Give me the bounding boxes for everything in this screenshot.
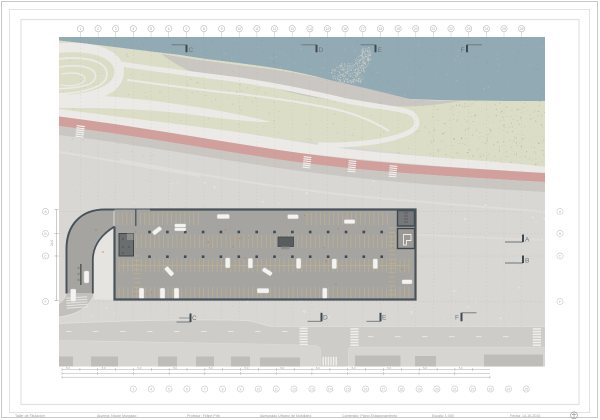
svg-text:Escala: 1:300: Escala: 1:300 — [432, 414, 454, 418]
svg-text:5.0: 5.0 — [66, 366, 70, 370]
svg-text:20: 20 — [435, 387, 439, 391]
svg-text:25: 25 — [502, 27, 506, 31]
svg-text:25: 25 — [524, 387, 528, 391]
svg-text:15: 15 — [326, 27, 330, 31]
svg-text:24: 24 — [507, 387, 511, 391]
svg-text:Profesor: Felipe Prib: Profesor: Felipe Prib — [187, 414, 220, 418]
svg-text:18: 18 — [399, 387, 403, 391]
svg-text:2: 2 — [97, 27, 99, 31]
svg-text:Asesorado Urbano de Mobiliario: Asesorado Urbano de Mobiliario — [260, 414, 311, 418]
svg-text:5.0: 5.0 — [423, 366, 427, 370]
svg-text:5.0: 5.0 — [387, 366, 391, 370]
svg-text:15: 15 — [346, 387, 350, 391]
svg-text:9: 9 — [240, 387, 242, 391]
svg-text:17: 17 — [361, 27, 365, 31]
svg-text:D: D — [319, 47, 324, 54]
svg-text:12: 12 — [273, 27, 277, 31]
svg-text:3: 3 — [132, 387, 134, 391]
svg-text:E: E — [382, 314, 387, 321]
svg-text:11: 11 — [255, 27, 259, 31]
svg-text:Alumna: Nicole Morgado: Alumna: Nicole Morgado — [97, 414, 136, 418]
svg-text:8: 8 — [222, 387, 224, 391]
svg-text:19: 19 — [417, 387, 421, 391]
svg-text:Fecha: 14-10-2015: Fecha: 14-10-2015 — [510, 414, 540, 418]
svg-text:5.0: 5.0 — [280, 366, 284, 370]
svg-text:23: 23 — [467, 27, 471, 31]
svg-text:5.0: 5.0 — [316, 366, 320, 370]
svg-text:17: 17 — [381, 387, 385, 391]
svg-text:14: 14 — [328, 387, 332, 391]
svg-text:5.0: 5.0 — [245, 366, 249, 370]
svg-text:4: 4 — [132, 27, 134, 31]
svg-text:Taller de Titulación: Taller de Titulación — [15, 414, 45, 418]
svg-text:10: 10 — [237, 27, 241, 31]
svg-text:E: E — [378, 47, 383, 54]
svg-text:D: D — [323, 314, 328, 321]
svg-text:1: 1 — [79, 27, 81, 31]
svg-text:23: 23 — [489, 387, 493, 391]
svg-text:3: 3 — [115, 27, 117, 31]
svg-text:21: 21 — [432, 27, 436, 31]
svg-text:5.0: 5.0 — [352, 366, 356, 370]
svg-text:4: 4 — [150, 387, 152, 391]
svg-text:19: 19 — [396, 27, 400, 31]
svg-text:5.0: 5.0 — [459, 366, 463, 370]
svg-text:5.0: 5.0 — [102, 366, 106, 370]
svg-text:F: F — [455, 314, 459, 321]
svg-text:5: 5 — [150, 27, 152, 31]
svg-text:16: 16 — [364, 387, 368, 391]
svg-text:Contenido: Plano Estacionamien: Contenido: Plano Estacionamiento — [342, 414, 397, 418]
svg-text:22: 22 — [471, 387, 475, 391]
svg-text:10: 10 — [256, 387, 260, 391]
svg-text:F: F — [44, 300, 46, 304]
svg-text:21: 21 — [453, 387, 457, 391]
svg-text:5.0: 5.0 — [173, 366, 177, 370]
svg-text:F: F — [461, 47, 465, 54]
svg-text:22: 22 — [449, 27, 453, 31]
svg-text:8: 8 — [203, 27, 205, 31]
svg-text:6: 6 — [186, 387, 188, 391]
svg-text:5.0: 5.0 — [137, 366, 141, 370]
svg-text:A: A — [525, 237, 530, 244]
svg-text:B: B — [525, 258, 529, 265]
svg-text:6: 6 — [168, 27, 170, 31]
svg-text:F: F — [559, 300, 561, 304]
svg-text:24: 24 — [485, 27, 489, 31]
svg-text:5.0: 5.0 — [209, 366, 213, 370]
svg-text:5: 5 — [168, 387, 170, 391]
svg-text:24.0: 24.0 — [50, 240, 54, 246]
svg-text:16: 16 — [343, 27, 347, 31]
svg-text:13: 13 — [290, 27, 294, 31]
svg-text:26: 26 — [520, 27, 524, 31]
svg-text:12: 12 — [292, 387, 296, 391]
svg-text:C: C — [189, 47, 194, 54]
svg-text:13: 13 — [310, 387, 314, 391]
svg-text:7: 7 — [185, 27, 187, 31]
svg-text:11: 11 — [274, 387, 278, 391]
svg-text:C: C — [192, 315, 197, 322]
svg-text:9: 9 — [221, 27, 223, 31]
svg-text:20: 20 — [414, 27, 418, 31]
svg-text:14: 14 — [308, 27, 312, 31]
svg-text:7: 7 — [204, 387, 206, 391]
svg-text:18: 18 — [379, 27, 383, 31]
